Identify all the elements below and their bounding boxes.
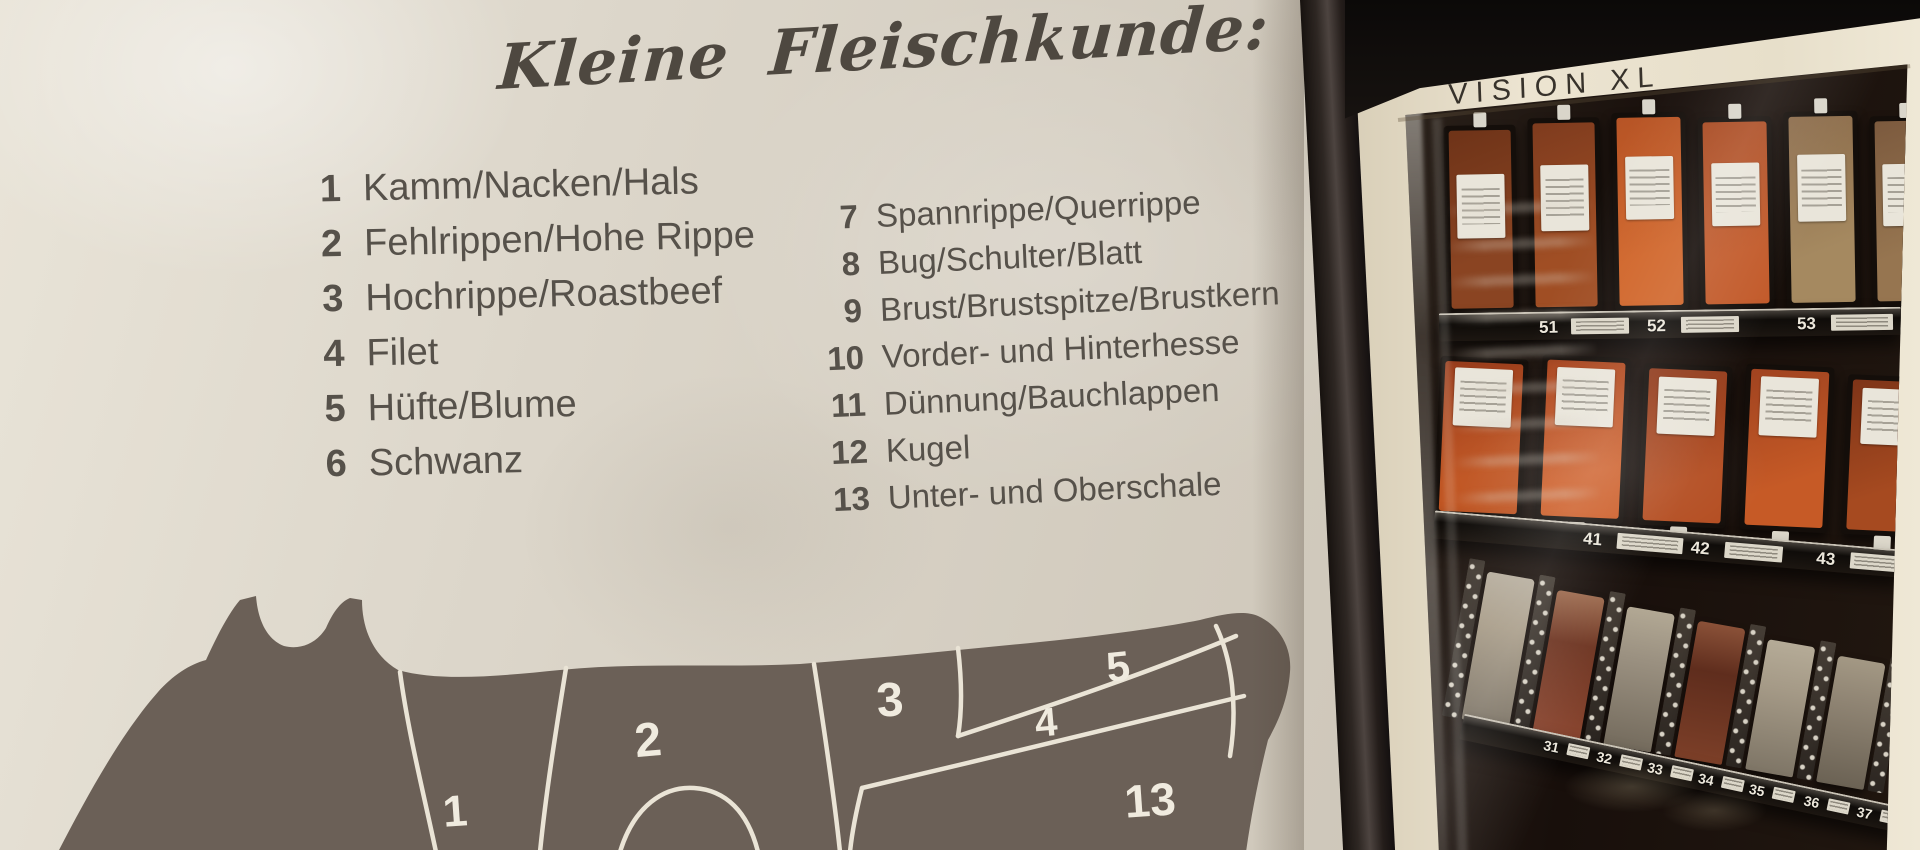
price-sticker — [1619, 754, 1643, 770]
package-label — [1758, 376, 1819, 438]
cut-number: 5 — [301, 388, 346, 432]
package-label — [1711, 163, 1761, 227]
cut-number: 12 — [815, 433, 869, 473]
slot-number: 53 — [1797, 314, 1816, 334]
poster-title: Kleine Fleischkunde: — [496, 0, 1140, 104]
package-label — [1625, 155, 1675, 219]
cut-label: Kamm/Nacken/Hals — [363, 160, 700, 210]
cut-label: Spannrippe/Querrippe — [875, 183, 1201, 235]
cut-label: Fehlrippen/Hohe Rippe — [364, 214, 756, 265]
cut-number: 2 — [298, 223, 343, 267]
slot-number: 52 — [1647, 316, 1666, 336]
slot-number: 35 — [1748, 781, 1767, 800]
cut-number: 13 — [817, 480, 871, 520]
package-label — [1656, 377, 1717, 436]
section-label-2: 2 — [632, 713, 663, 768]
price-sticker — [1831, 314, 1893, 331]
hanger-hook-icon — [1557, 105, 1570, 120]
slot-number: 36 — [1802, 792, 1821, 811]
price-sticker — [1850, 552, 1901, 572]
slot-number: 42 — [1690, 538, 1711, 560]
wall-corner-shadow — [1252, 0, 1304, 850]
cut-label: Kugel — [885, 428, 971, 470]
section-label-1: 1 — [441, 786, 469, 837]
price-sticker — [1670, 765, 1694, 781]
butcher-shop-scene: Kleine Fleischkunde: 1Kamm/Nacken/Hals 2… — [0, 0, 1920, 850]
slot-number: 33 — [1646, 759, 1665, 778]
price-sticker — [1681, 316, 1739, 333]
machine-glass-front[interactable]: 51 52 53 41 42 43 — [1395, 58, 1910, 850]
hanger-hook-icon — [1728, 104, 1741, 119]
cuts-list-left: 1Kamm/Nacken/Hals 2Fehlrippen/Hohe Rippe… — [297, 159, 761, 498]
cut-number: 8 — [807, 245, 861, 285]
list-item: 4Filet — [300, 324, 758, 389]
list-item: 5Hüfte/Blume — [301, 379, 759, 444]
list-item: 6Schwanz — [302, 434, 760, 499]
beef-cuts-diagram: 1 2 3 4 5 13 — [55, 540, 1320, 850]
price-sticker — [1772, 787, 1796, 803]
cut-number: 9 — [809, 292, 863, 332]
meat-package — [1611, 112, 1688, 311]
price-sticker — [1724, 542, 1783, 563]
cut-number: 3 — [299, 278, 344, 322]
section-label-13: 13 — [1123, 772, 1178, 827]
cut-number: 7 — [805, 198, 859, 238]
price-sticker — [1566, 743, 1590, 759]
section-label-4: 4 — [1033, 700, 1060, 746]
meat-package — [1739, 364, 1834, 534]
list-item: 3Hochrippe/Roastbeef — [299, 269, 757, 334]
cut-label: Hüfte/Blume — [367, 383, 577, 430]
price-sticker — [1616, 533, 1683, 554]
slot-number: 41 — [1582, 529, 1603, 551]
slot-number: 34 — [1697, 770, 1716, 789]
section-label-3: 3 — [875, 673, 905, 728]
cut-label: Filet — [366, 331, 439, 375]
list-item: 2Fehlrippen/Hohe Rippe — [298, 214, 756, 279]
price-sticker — [1721, 776, 1745, 792]
cut-label: Hochrippe/Roastbeef — [365, 270, 723, 320]
hanger-hook-icon — [1642, 99, 1655, 114]
meat-package — [1637, 363, 1732, 529]
cut-number: 6 — [302, 443, 347, 487]
meat-package — [1697, 116, 1774, 309]
slot-number: 37 — [1855, 804, 1874, 823]
price-sticker — [1826, 798, 1850, 814]
package-label — [1797, 154, 1847, 221]
meat-package — [1783, 111, 1860, 308]
hanger-hook-icon — [1474, 112, 1487, 127]
cut-number: 10 — [811, 339, 865, 379]
cut-label: Schwanz — [368, 439, 523, 485]
cut-number: 11 — [813, 386, 867, 426]
glass-reflected-text — [1445, 176, 1604, 510]
cut-number: 4 — [300, 333, 345, 377]
slot-number: 32 — [1595, 748, 1614, 767]
cut-number: 1 — [297, 168, 342, 212]
hanger-hook-icon — [1814, 98, 1827, 113]
slot-number: 31 — [1542, 737, 1561, 756]
list-item: 1Kamm/Nacken/Hals — [297, 159, 755, 224]
section-label-5: 5 — [1104, 642, 1132, 691]
cow-silhouette — [58, 596, 1290, 850]
cuts-list-right: 7Spannrippe/Querrippe 8Bug/Schulter/Blat… — [805, 180, 1288, 528]
slot-number: 43 — [1815, 548, 1836, 570]
